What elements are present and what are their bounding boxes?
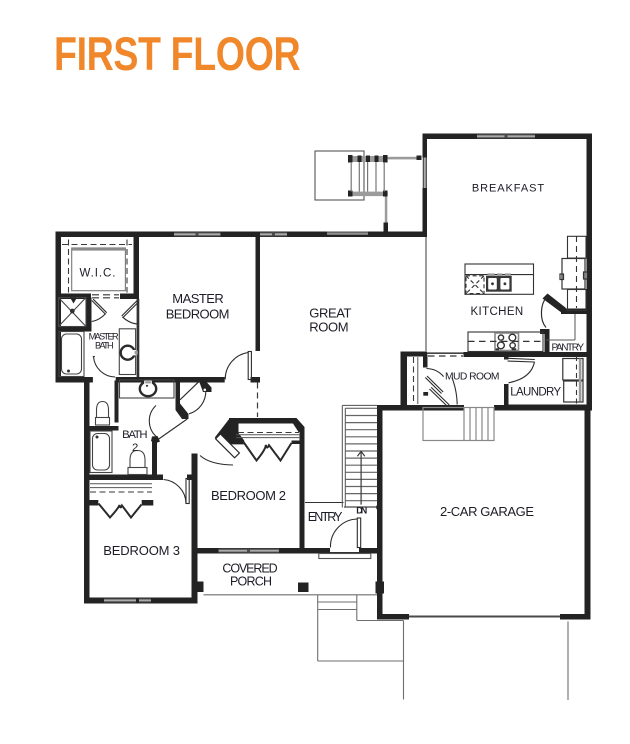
svg-text:BEDROOM 2: BEDROOM 2 xyxy=(211,488,286,503)
svg-text:2: 2 xyxy=(132,442,138,454)
svg-text:W.I.C.: W.I.C. xyxy=(80,268,116,280)
svg-text:COVERED: COVERED xyxy=(222,561,277,575)
svg-text:ROOM: ROOM xyxy=(309,320,348,335)
svg-text:PORCH: PORCH xyxy=(230,575,272,589)
svg-text:BREAKFAST: BREAKFAST xyxy=(472,183,544,195)
svg-text:LAUNDRY: LAUNDRY xyxy=(510,386,561,398)
svg-text:BEDROOM: BEDROOM xyxy=(166,306,230,321)
svg-text:DN: DN xyxy=(356,506,367,516)
svg-text:KITCHEN: KITCHEN xyxy=(471,306,524,318)
svg-text:GREAT: GREAT xyxy=(309,305,351,320)
svg-text:2-CAR GARAGE: 2-CAR GARAGE xyxy=(440,504,534,519)
svg-text:MASTER: MASTER xyxy=(172,291,224,306)
svg-text:BEDROOM 3: BEDROOM 3 xyxy=(103,543,180,558)
svg-text:BATH: BATH xyxy=(122,429,148,441)
svg-text:ENTRY: ENTRY xyxy=(308,510,343,524)
svg-text:PANTRY: PANTRY xyxy=(552,342,585,353)
svg-text:MUD ROOM: MUD ROOM xyxy=(445,372,500,383)
svg-text:BATH: BATH xyxy=(95,341,114,351)
